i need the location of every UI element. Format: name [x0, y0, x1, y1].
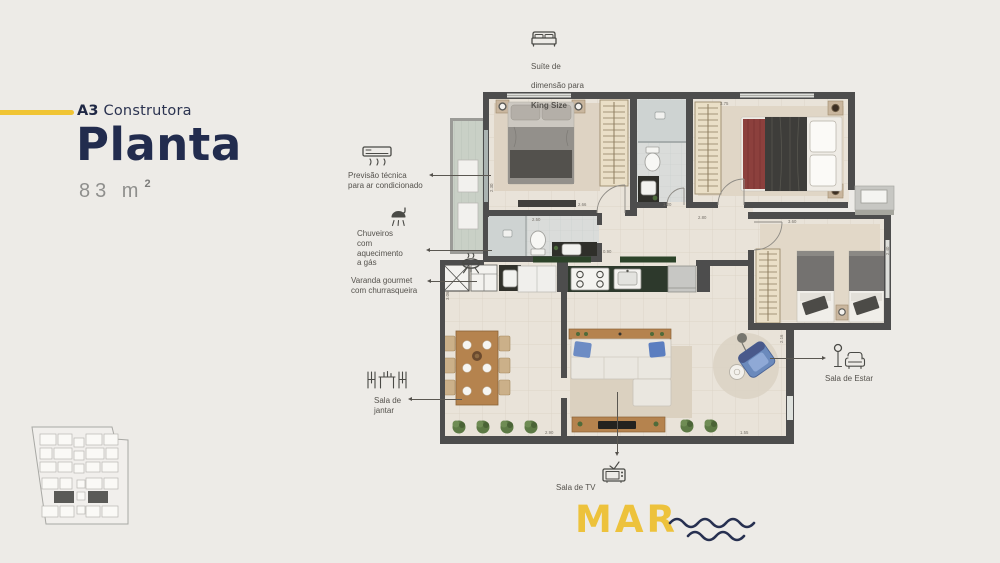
- dining-icon: [365, 367, 409, 393]
- callout-suite-line3: King Size: [531, 101, 584, 111]
- brand-rest: Construtora: [99, 103, 192, 119]
- callout-jantar-arrowhead: [408, 397, 412, 401]
- dimension-label: 0.90: [603, 249, 612, 254]
- callout-estar-arrowhead: [822, 356, 826, 360]
- dimension-label: 2.80: [698, 215, 707, 220]
- area-sup: 2: [144, 178, 150, 190]
- callout-suite-line1: Suíte de: [531, 62, 584, 72]
- dimension-label: 1.55: [740, 430, 749, 435]
- callout-tv-arrowhead: [615, 452, 619, 456]
- callout-jantar-line: [412, 399, 462, 400]
- dimension-label: 2.66: [578, 202, 587, 207]
- dimension-label: 2.50: [532, 217, 541, 222]
- bedroom3-furniture: [756, 224, 884, 323]
- dimension-label: 2.16: [779, 334, 784, 343]
- dimension-label: 2.40: [885, 246, 890, 255]
- waves-icon: [668, 512, 760, 546]
- dimension-label: 1.20: [663, 202, 672, 207]
- master-furniture: [695, 101, 844, 198]
- callout-estar-line: [770, 358, 824, 359]
- callout-estar: Sala de Estar: [818, 374, 880, 384]
- callout-tv: Sala de TV: [556, 483, 595, 493]
- dimension-label: 2.30: [489, 183, 494, 192]
- page-title: Planta: [76, 118, 242, 171]
- callout-ac: Previsão técnica para ar condicionado: [348, 171, 423, 191]
- brand: A3 Construtora: [77, 103, 192, 119]
- callout-jantar: Sala de jantar: [374, 396, 401, 416]
- dimension-label: 2.90: [545, 430, 554, 435]
- callout-varanda: Varanda gourmet com churrasqueira: [351, 276, 417, 296]
- callout-varanda-line: [431, 281, 477, 282]
- key-plan: [24, 418, 140, 536]
- tv-icon: [601, 460, 627, 483]
- bed-icon: [531, 30, 557, 48]
- area-label: 83 m2: [79, 180, 151, 203]
- ac-niche: [855, 186, 894, 215]
- brand-accent-line: [0, 110, 74, 115]
- floor-plan: 2.662.302.501.202.803.753.602.400.902.90…: [438, 85, 900, 453]
- dimension-label: 3.06: [445, 291, 450, 300]
- callout-suite-line2: dimensão para: [531, 81, 584, 91]
- barbecue-icon: [459, 252, 483, 276]
- brand-bold: A3: [77, 103, 99, 119]
- area-value: 83 m: [79, 180, 143, 202]
- dimension-label: 3.75: [720, 101, 729, 106]
- callout-ac-line: [433, 175, 491, 176]
- callout-suite: Suíte de dimensão para King Size: [531, 52, 584, 120]
- callout-varanda-arrowhead: [427, 279, 431, 283]
- callout-ac-arrowhead: [429, 173, 433, 177]
- callout-tv-line: [617, 392, 618, 452]
- dimension-label: 3.60: [788, 219, 797, 224]
- callout-shower-line: [430, 250, 492, 251]
- mar-label: MAR: [575, 498, 678, 541]
- floorplan-page: { "header": { "brand_bold": "A3", "brand…: [0, 0, 1000, 563]
- armchair-lamp-icon: [831, 343, 867, 371]
- callout-shower-arrowhead: [426, 248, 430, 252]
- air-conditioner-icon: [362, 145, 392, 167]
- callout-shower: Chuveiros com aquecimento a gás: [357, 229, 403, 268]
